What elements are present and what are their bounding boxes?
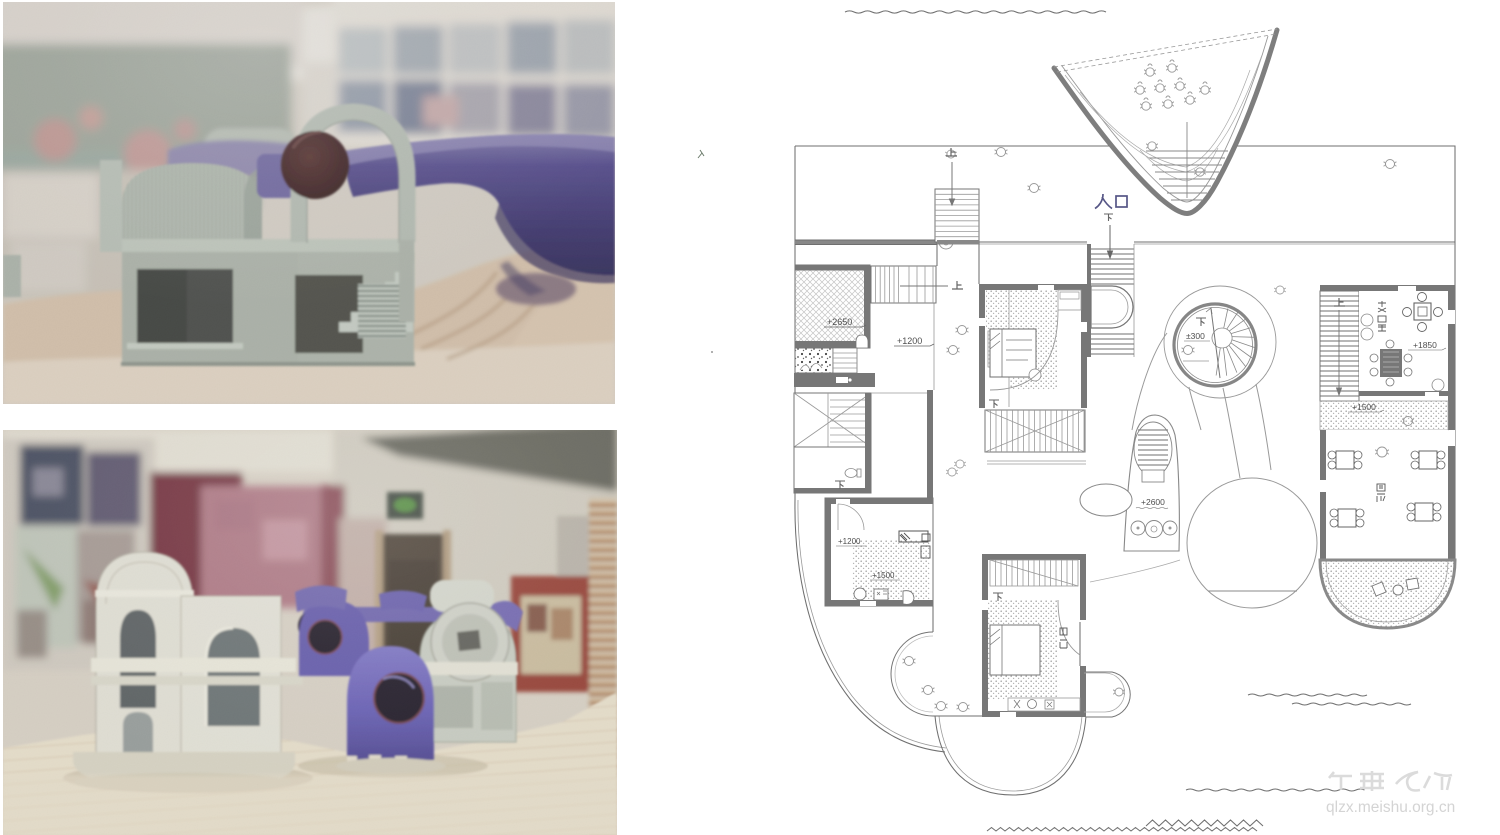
- svg-text:+1850: +1850: [1413, 340, 1437, 350]
- svg-text:+2650: +2650: [827, 317, 852, 327]
- svg-text:±300: ±300: [1186, 331, 1205, 341]
- svg-text:+1500: +1500: [872, 571, 895, 580]
- svg-text:+1200: +1200: [838, 537, 861, 546]
- svg-text:+1200: +1200: [897, 336, 922, 346]
- svg-text:+1500: +1500: [1352, 402, 1376, 412]
- svg-text:+2600: +2600: [1141, 497, 1165, 507]
- svg-text:qlzx.meishu.org.cn: qlzx.meishu.org.cn: [1326, 799, 1455, 816]
